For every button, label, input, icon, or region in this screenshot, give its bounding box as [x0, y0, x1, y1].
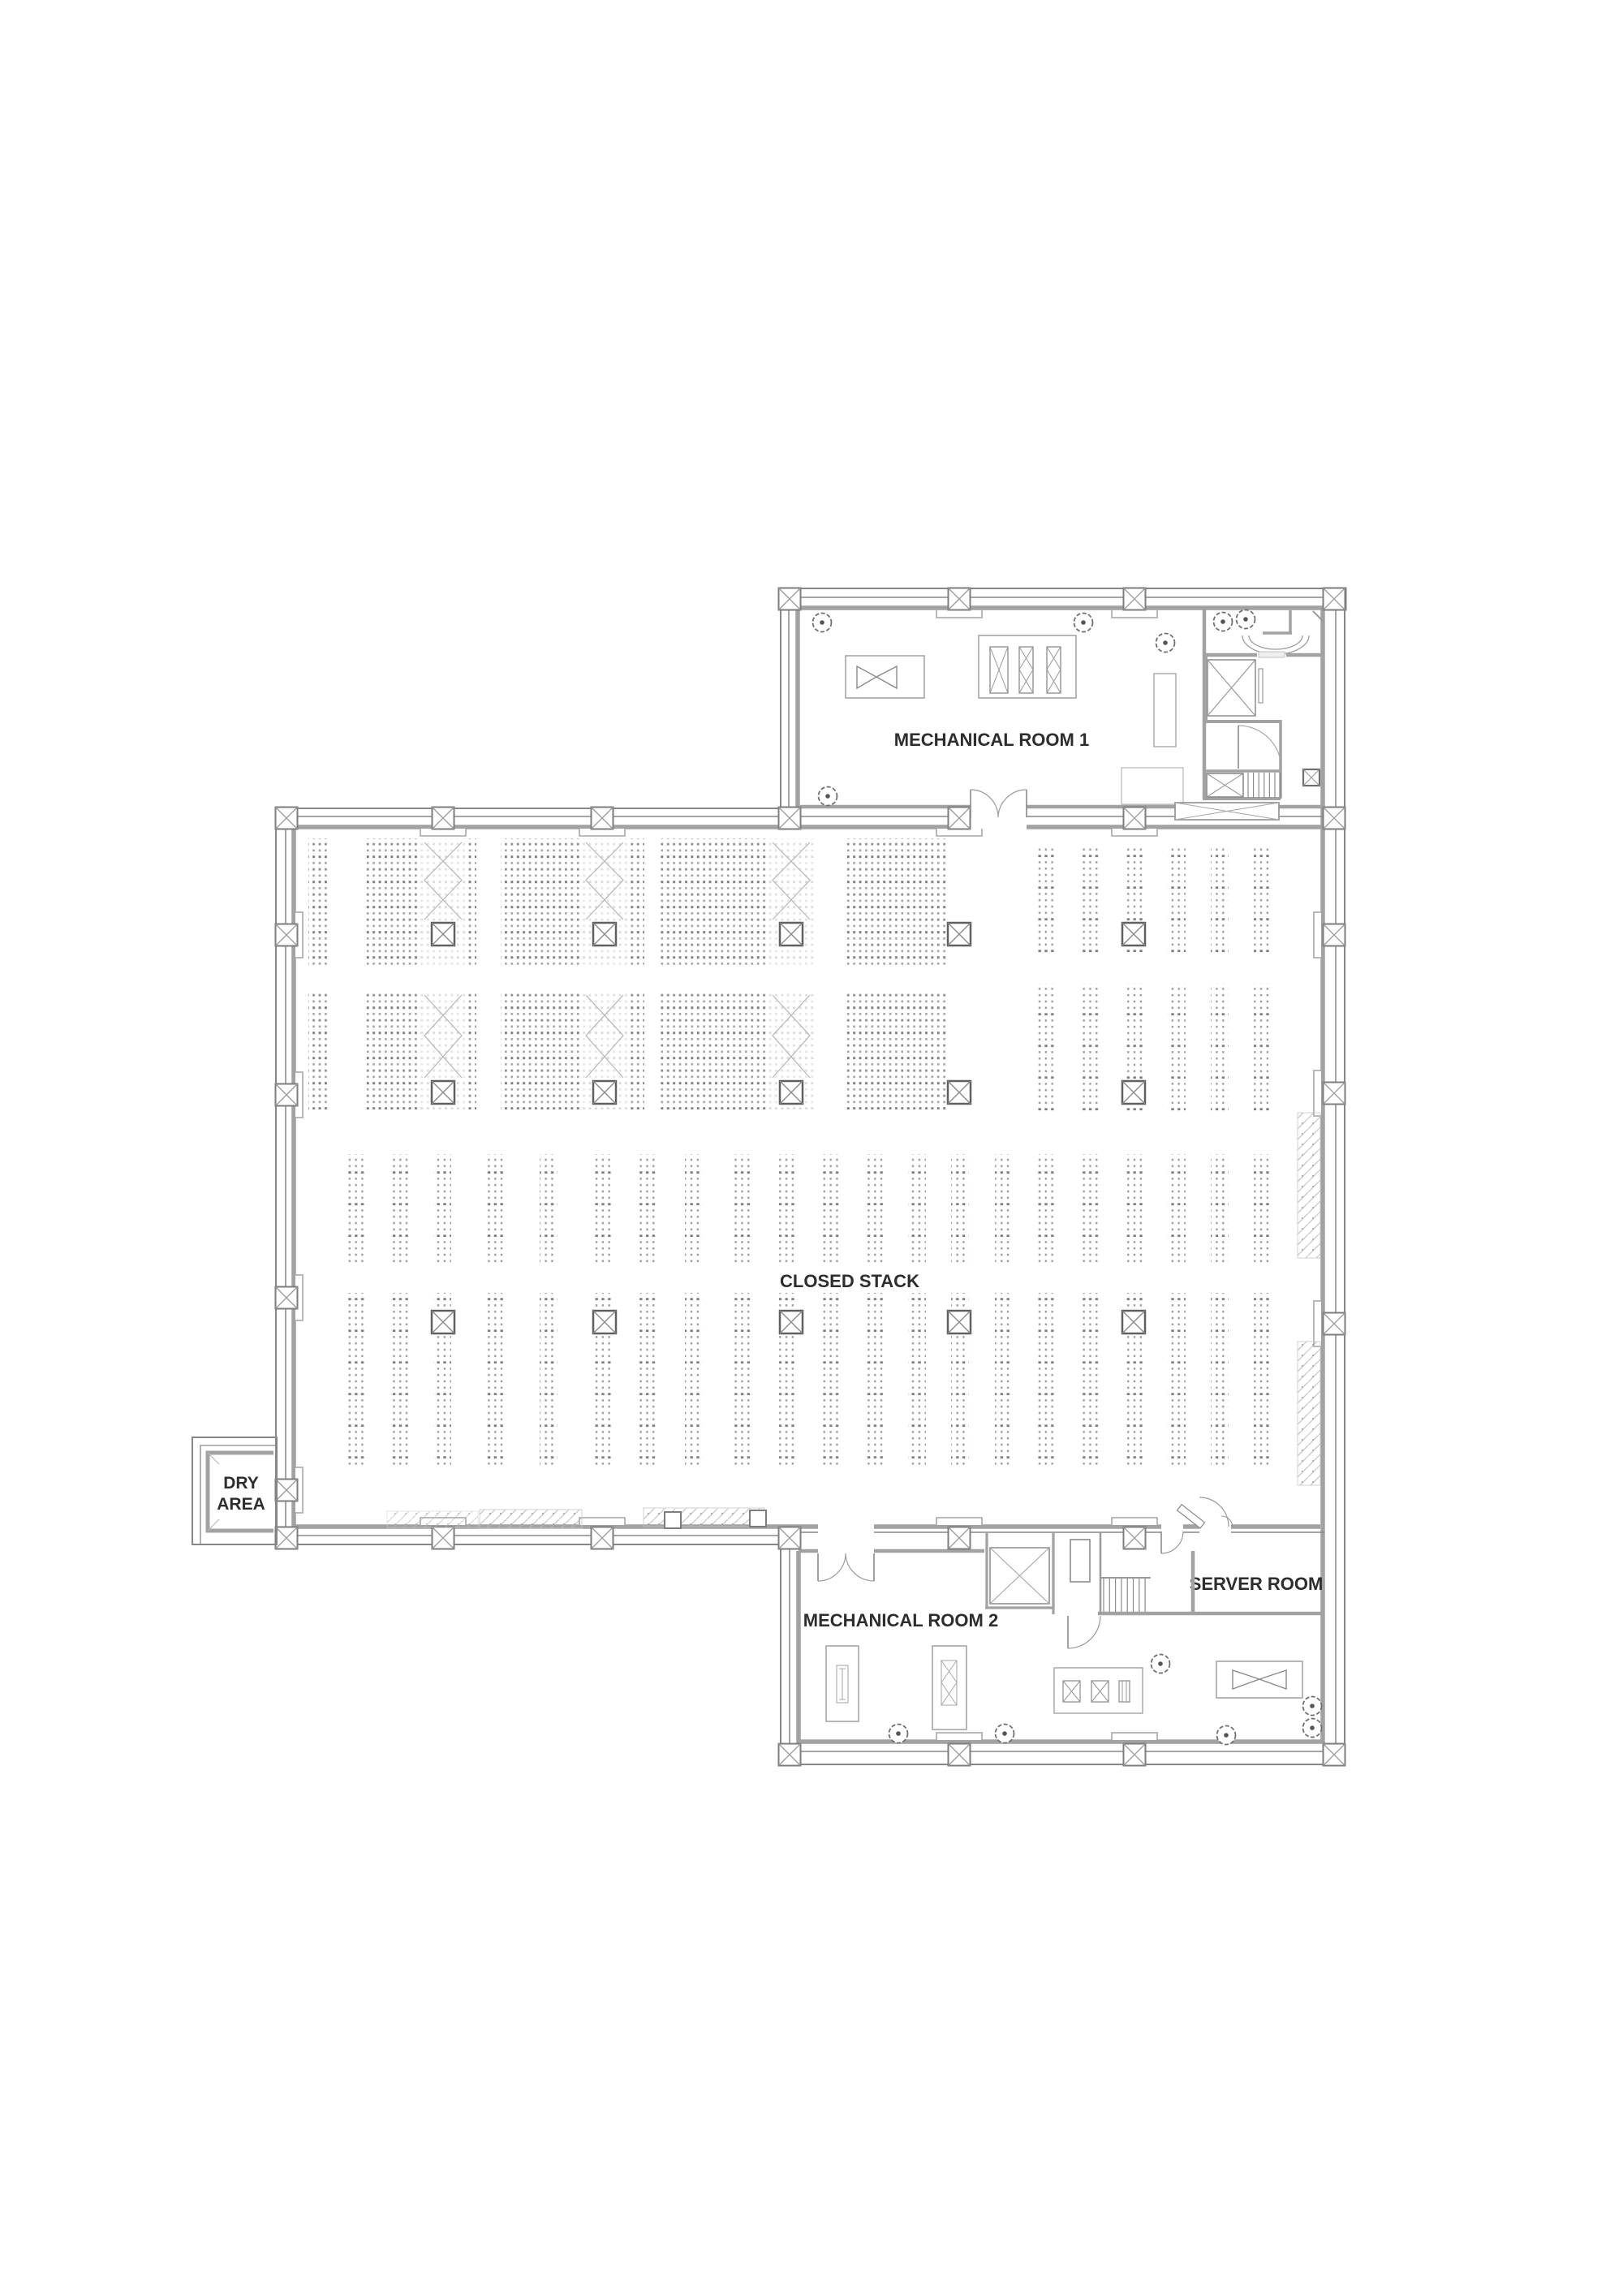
svg-text:SERVER ROOM: SERVER ROOM — [1190, 1574, 1324, 1594]
svg-text:DRY: DRY — [223, 1474, 259, 1493]
svg-text:MECHANICAL ROOM 1: MECHANICAL ROOM 1 — [894, 730, 1089, 750]
svg-text:MECHANICAL ROOM 2: MECHANICAL ROOM 2 — [803, 1610, 998, 1630]
svg-text:CLOSED STACK: CLOSED STACK — [780, 1271, 919, 1291]
svg-text:AREA: AREA — [217, 1495, 265, 1514]
